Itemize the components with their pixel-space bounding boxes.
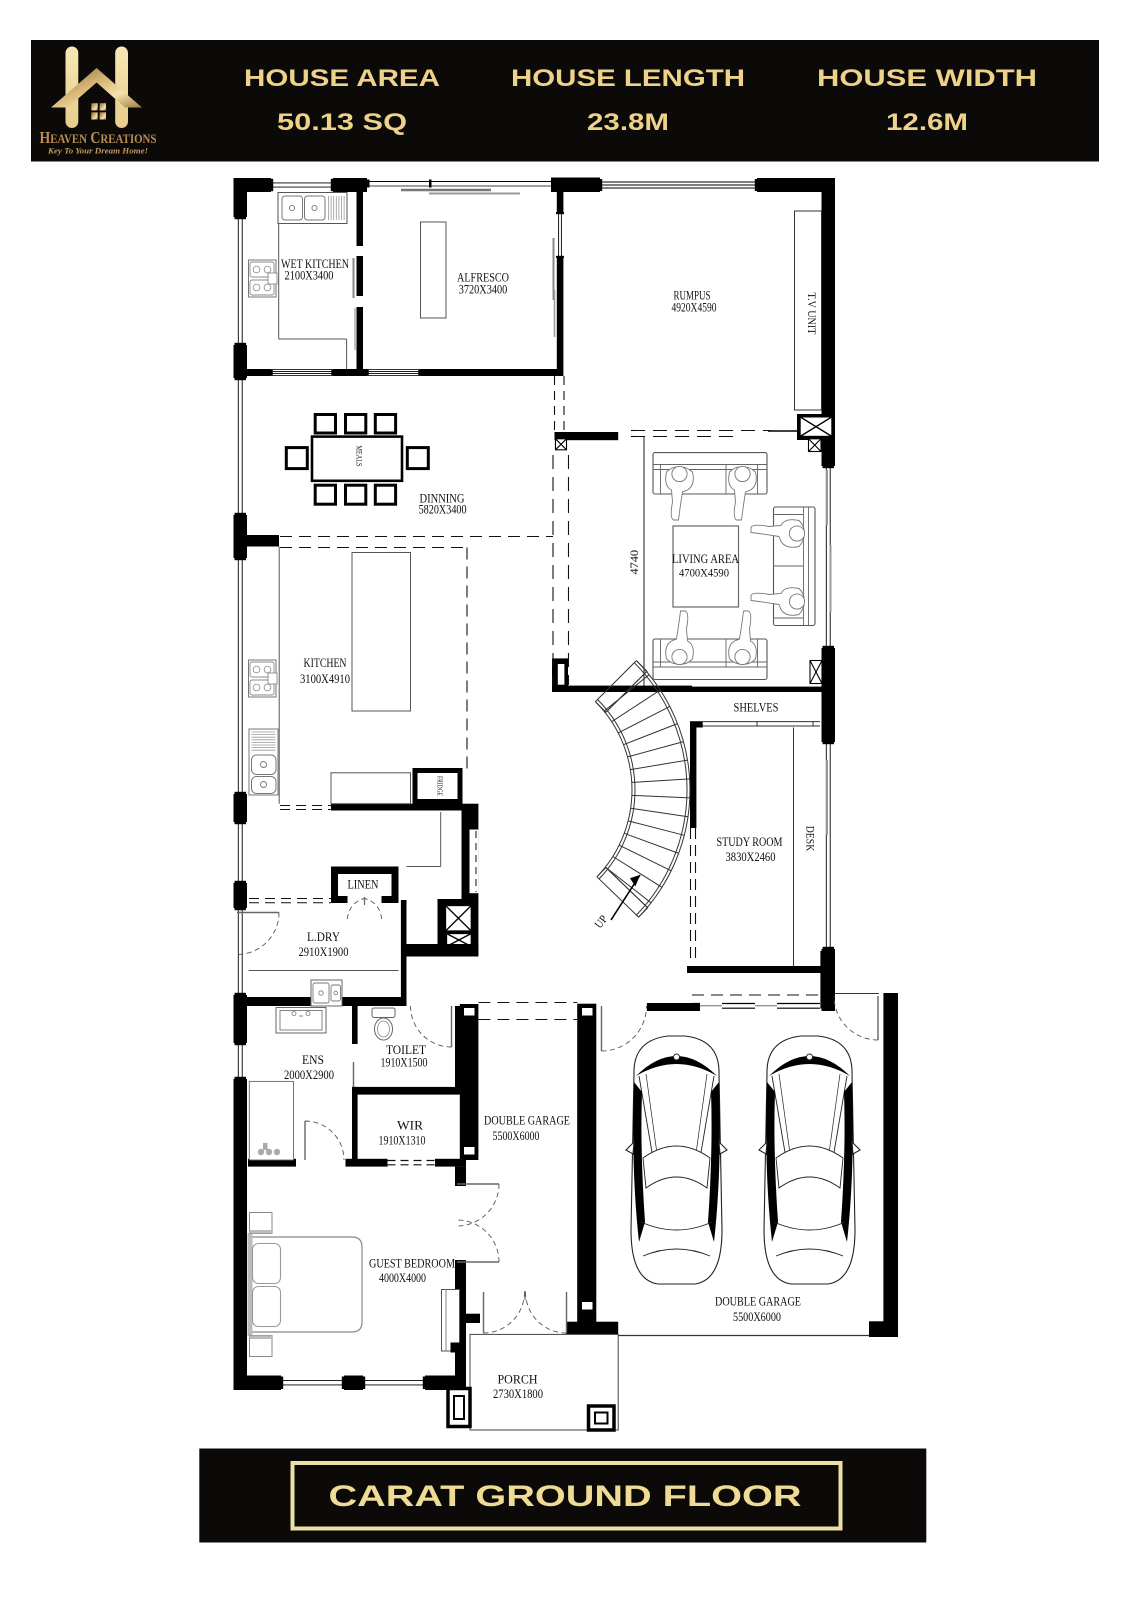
svg-text:5500X6000: 5500X6000 [493, 1129, 540, 1143]
svg-text:4700X4590: 4700X4590 [679, 566, 729, 580]
svg-text:FRIDGE: FRIDGE [436, 776, 444, 796]
svg-text:5820X3400: 5820X3400 [419, 503, 467, 517]
svg-text:12.6M: 12.6M [886, 109, 968, 136]
svg-text:2100X3400: 2100X3400 [285, 269, 334, 283]
svg-text:DOUBLE GARAGE: DOUBLE GARAGE [715, 1294, 801, 1309]
svg-text:HOUSE LENGTH: HOUSE LENGTH [511, 65, 745, 92]
svg-text:5500X6000: 5500X6000 [733, 1310, 781, 1324]
svg-text:PORCH: PORCH [498, 1372, 538, 1387]
svg-text:4920X4590: 4920X4590 [672, 301, 717, 315]
svg-text:LINEN: LINEN [348, 878, 379, 892]
svg-text:50.13 SQ: 50.13 SQ [277, 109, 407, 136]
svg-text:2730X1800: 2730X1800 [493, 1387, 543, 1401]
svg-text:T.V UNIT: T.V UNIT [805, 293, 817, 335]
svg-text:3100X4910: 3100X4910 [300, 672, 350, 686]
svg-text:LIVING AREA: LIVING AREA [672, 552, 739, 566]
svg-text:WIR: WIR [397, 1118, 423, 1133]
svg-text:Key To Your Dream Home!: Key To Your Dream Home! [47, 147, 148, 156]
svg-text:4000X4000: 4000X4000 [379, 1271, 426, 1285]
svg-text:CARAT GROUND FLOOR: CARAT GROUND FLOOR [329, 1480, 802, 1513]
svg-text:DOUBLE GARAGE: DOUBLE GARAGE [484, 1113, 570, 1128]
svg-text:MEALS: MEALS [355, 446, 365, 467]
svg-text:2000X2900: 2000X2900 [284, 1068, 334, 1082]
svg-text:1910X1500: 1910X1500 [381, 1056, 428, 1070]
svg-text:1910X1310: 1910X1310 [379, 1134, 426, 1148]
svg-text:DESK: DESK [804, 826, 816, 852]
svg-text:23.8M: 23.8M [587, 109, 669, 136]
svg-text:SHELVES: SHELVES [734, 701, 779, 715]
svg-text:3830X2460: 3830X2460 [726, 850, 776, 864]
svg-text:ENS: ENS [302, 1052, 324, 1067]
svg-text:KITCHEN: KITCHEN [304, 655, 347, 670]
svg-text:GUEST BEDROOM: GUEST BEDROOM [369, 1256, 455, 1271]
svg-text:HOUSE AREA: HOUSE AREA [244, 65, 440, 92]
svg-text:HEAVEN CREATIONS: HEAVEN CREATIONS [40, 128, 157, 147]
svg-text:HOUSE WIDTH: HOUSE WIDTH [817, 65, 1037, 92]
svg-text:3720X3400: 3720X3400 [459, 283, 508, 297]
svg-text:L.DRY: L.DRY [307, 929, 341, 944]
svg-text:2910X1900: 2910X1900 [299, 945, 349, 959]
svg-text:STUDY ROOM: STUDY ROOM [717, 834, 783, 849]
svg-text:4740: 4740 [629, 550, 641, 575]
